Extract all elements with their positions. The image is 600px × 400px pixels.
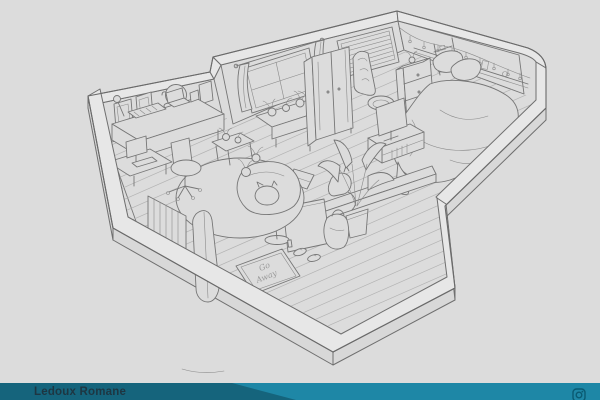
- wardrobe: [304, 47, 353, 151]
- room-illustration: Go Away: [0, 0, 600, 383]
- footer-bar: Ledoux Romane: [0, 383, 600, 400]
- instagram-icon: [572, 388, 586, 400]
- sketch-stray-mark: [182, 369, 224, 373]
- artist-name: Ledoux Romane: [34, 386, 126, 398]
- artwork-stage: Go Away: [0, 0, 600, 383]
